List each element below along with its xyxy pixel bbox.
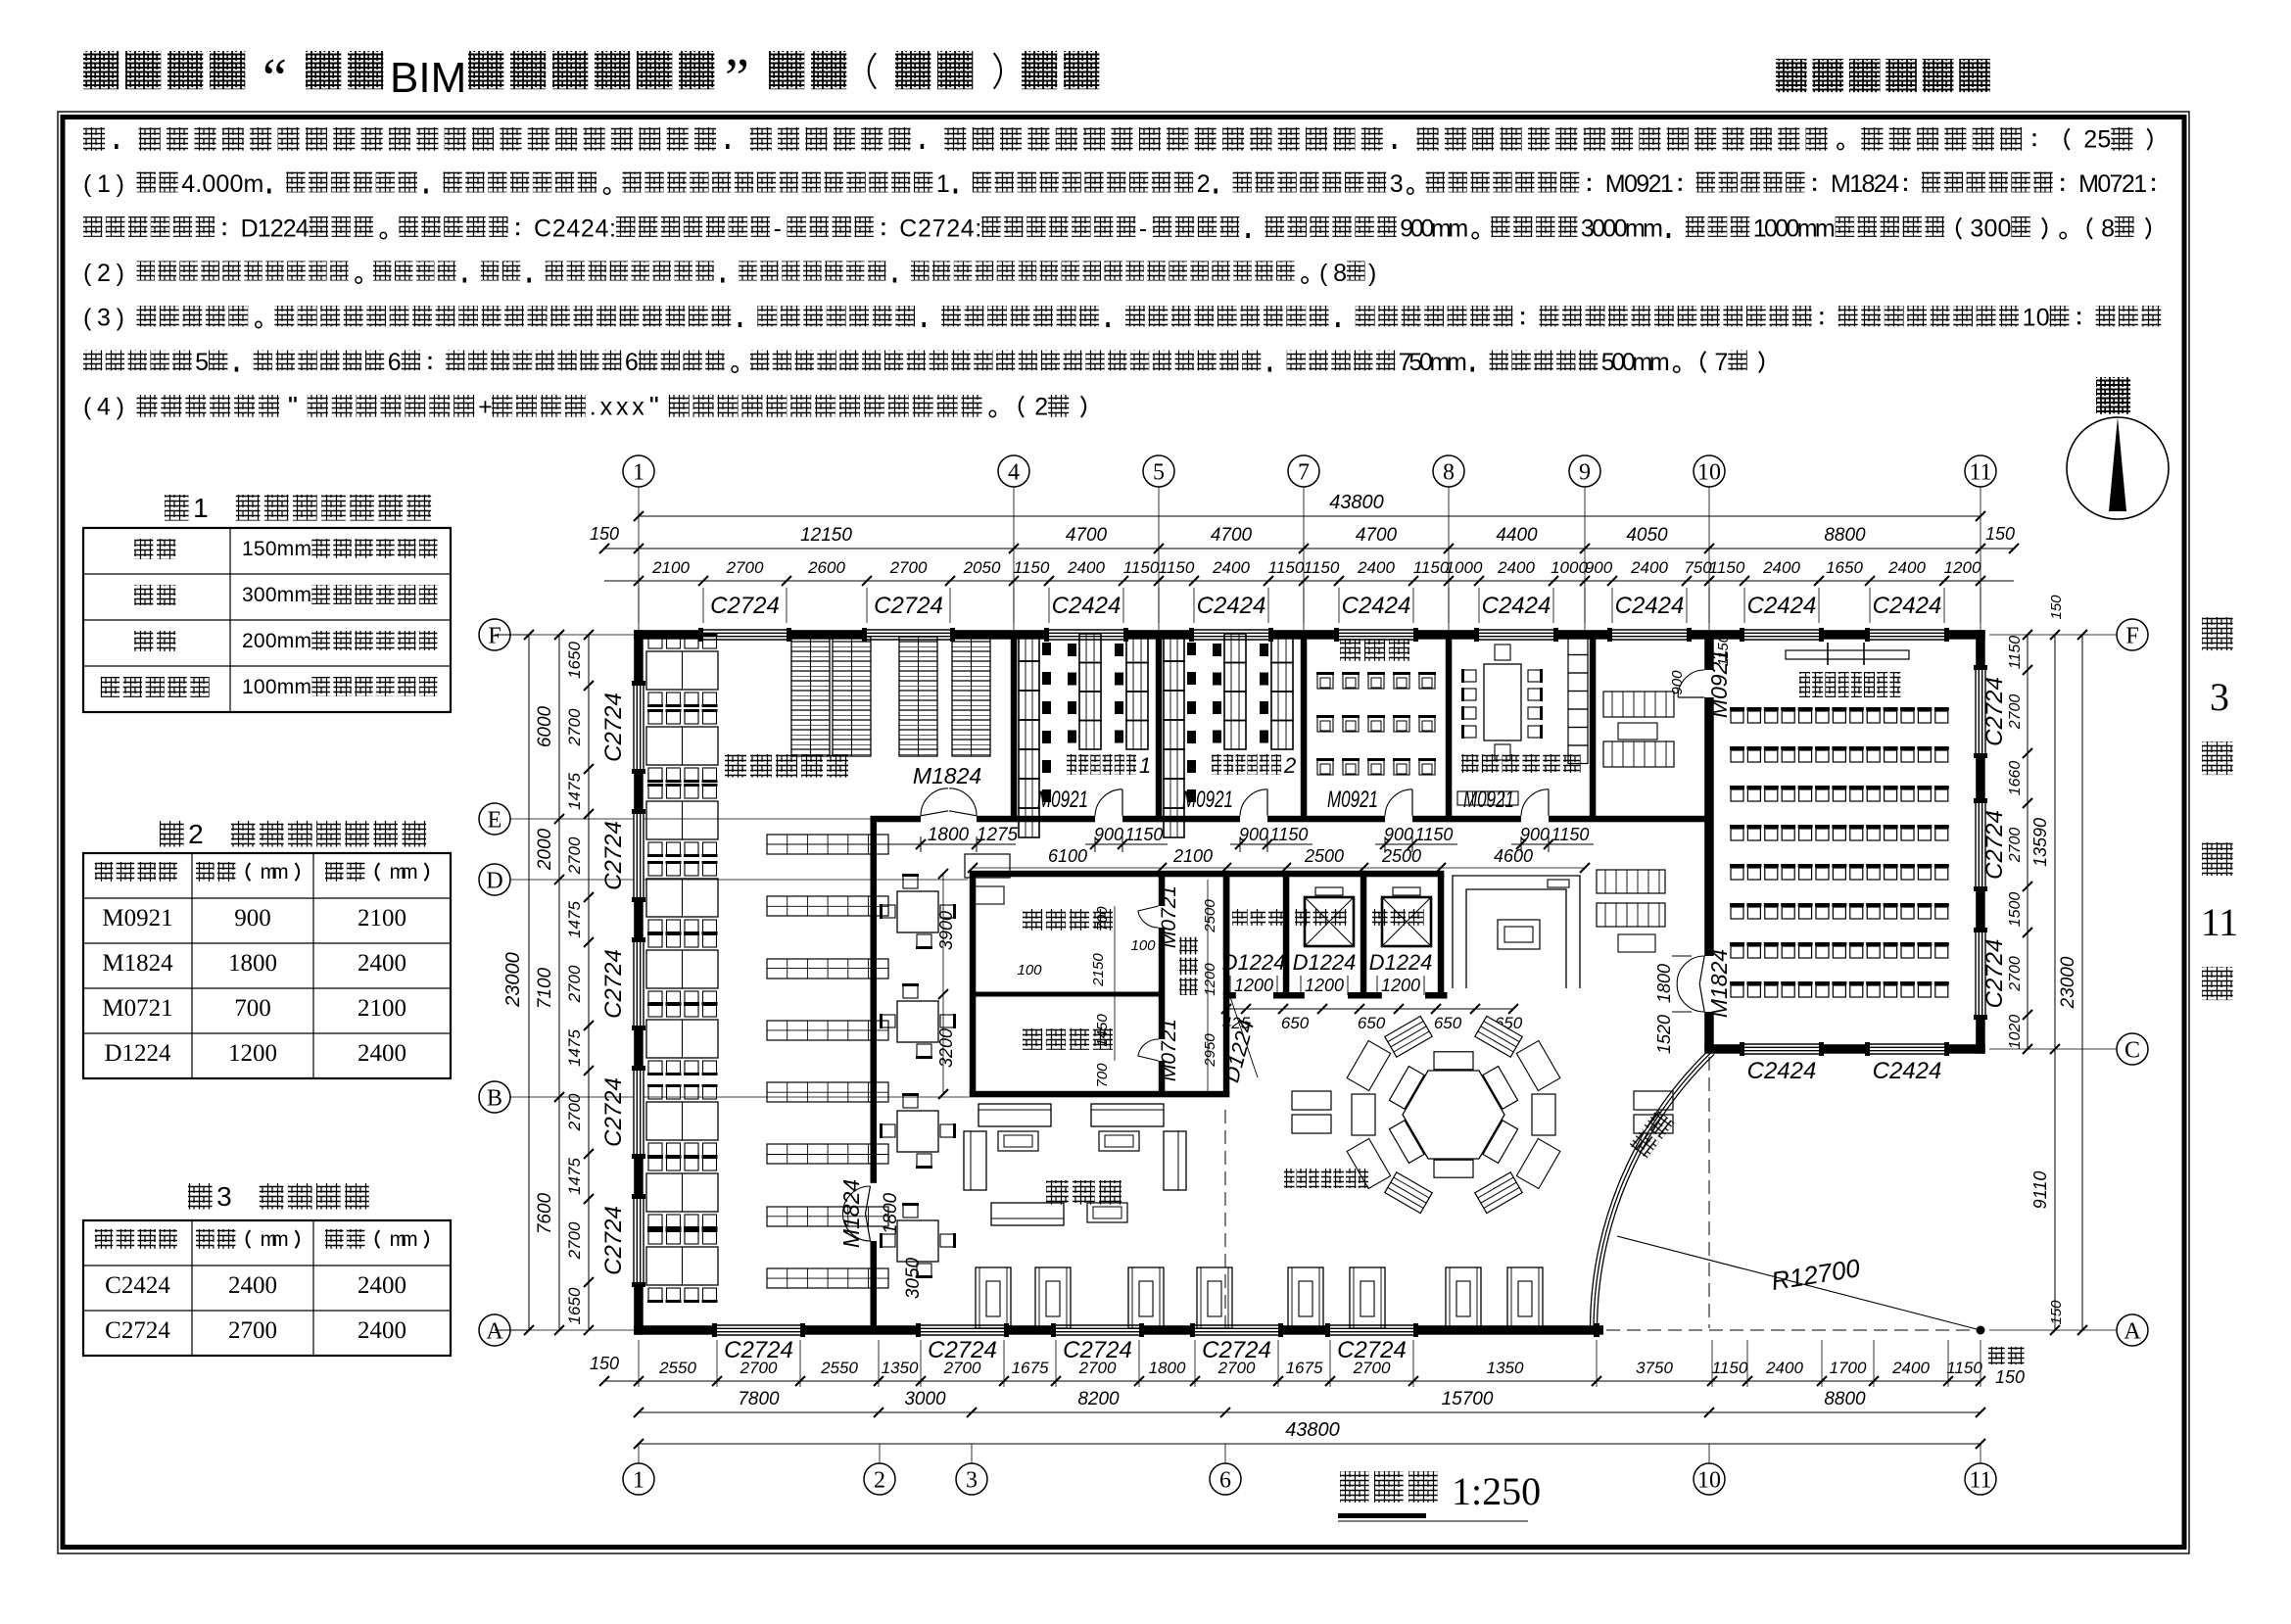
svg-text:8: 8	[2101, 215, 2115, 243]
svg-text:C2424: C2424	[1342, 593, 1411, 619]
svg-text:4700: 4700	[1211, 525, 1253, 546]
svg-text:M1824: M1824	[913, 763, 981, 788]
svg-text:2400: 2400	[358, 1317, 406, 1344]
svg-text:7: 7	[1714, 349, 1728, 376]
svg-text:D: D	[486, 868, 502, 893]
svg-text:2150: 2150	[1090, 953, 1107, 987]
svg-text:C2424: C2424	[1482, 593, 1551, 619]
svg-text:150: 150	[1985, 524, 2015, 544]
svg-text:2400: 2400	[228, 1272, 277, 1299]
svg-text:mm: mm	[390, 861, 418, 884]
svg-text:M0921: M0921	[102, 905, 172, 931]
svg-text:2: 2	[188, 819, 204, 849]
svg-text:43800: 43800	[1285, 1419, 1340, 1441]
svg-text:1150: 1150	[1123, 558, 1160, 577]
svg-text:F: F	[2125, 623, 2138, 648]
svg-text:2700: 2700	[565, 836, 584, 875]
svg-text:2: 2	[1197, 170, 1211, 198]
svg-text:2700: 2700	[943, 1359, 981, 1377]
svg-text:C2724: C2724	[600, 693, 627, 762]
svg-text:1150: 1150	[1159, 558, 1195, 577]
svg-text:1200: 1200	[1305, 976, 1344, 995]
svg-text:900: 900	[1384, 825, 1413, 844]
svg-text:2500: 2500	[1304, 846, 1344, 866]
svg-text:M0721: M0721	[102, 995, 172, 1022]
svg-text:10: 10	[1697, 459, 1721, 485]
svg-text:2700: 2700	[565, 1093, 584, 1131]
svg-text:4400: 4400	[1496, 525, 1538, 546]
svg-text:2700: 2700	[726, 558, 764, 577]
svg-text:”: ”	[725, 48, 749, 109]
svg-text:11: 11	[1969, 1467, 1991, 1493]
svg-text:BIM: BIM	[390, 54, 466, 102]
svg-text:150mm: 150mm	[242, 538, 311, 560]
svg-text:100: 100	[1130, 937, 1156, 954]
svg-text:10: 10	[2023, 305, 2050, 332]
svg-text:M1824: M1824	[1706, 949, 1732, 1018]
svg-text:1150: 1150	[1551, 825, 1590, 844]
svg-text:500mm: 500mm	[1601, 349, 1670, 376]
svg-text:E: E	[488, 807, 502, 833]
svg-text:C2724: C2724	[105, 1317, 170, 1344]
svg-text:1150: 1150	[1304, 558, 1340, 577]
svg-text:300: 300	[1970, 215, 2011, 243]
svg-text:M0721: M0721	[2078, 170, 2147, 198]
svg-text:7600: 7600	[535, 1192, 555, 1234]
svg-text:C2424: C2424	[1747, 593, 1817, 619]
svg-text:425: 425	[1222, 1014, 1251, 1032]
svg-text:1150: 1150	[1125, 825, 1164, 844]
svg-text:): )	[1368, 260, 1376, 287]
svg-text:D1224: D1224	[104, 1040, 171, 1067]
svg-text:150: 150	[1995, 1367, 2025, 1387]
svg-text:8: 8	[1443, 459, 1455, 485]
svg-text:900mm: 900mm	[1400, 215, 1468, 243]
svg-text:-: -	[1139, 215, 1147, 243]
svg-text:100: 100	[1017, 962, 1042, 979]
svg-text:mm: mm	[390, 1228, 418, 1251]
svg-text:3: 3	[1390, 170, 1404, 198]
svg-text:25: 25	[2083, 126, 2111, 154]
svg-text:3000mm: 3000mm	[1581, 215, 1663, 243]
svg-text:1275: 1275	[977, 825, 1019, 845]
svg-text:2400: 2400	[1887, 558, 1926, 577]
svg-text:2700: 2700	[565, 1221, 584, 1260]
svg-text:4050: 4050	[1626, 525, 1668, 546]
svg-text:900: 900	[1520, 825, 1550, 844]
svg-text:C2424: C2424	[1615, 593, 1685, 619]
svg-text:5: 5	[195, 349, 209, 376]
svg-text:10: 10	[1697, 1467, 1721, 1493]
svg-text:2700: 2700	[2007, 828, 2024, 864]
svg-text:C2724: C2724	[600, 1077, 627, 1147]
svg-text:C2724: C2724	[1981, 677, 2008, 746]
svg-text:M0921: M0921	[1327, 787, 1378, 813]
svg-text:1800: 1800	[1149, 1359, 1186, 1377]
svg-text:1500: 1500	[2007, 892, 2024, 928]
svg-text:-: -	[774, 215, 782, 243]
svg-text:7: 7	[1298, 459, 1310, 485]
svg-text:D1224: D1224	[1293, 950, 1357, 975]
svg-text:2550: 2550	[820, 1359, 858, 1377]
svg-text:4.000m: 4.000m	[181, 170, 263, 198]
svg-text:1350: 1350	[1487, 1359, 1524, 1377]
svg-text:C2424:: C2424:	[534, 215, 616, 243]
svg-text:(3): (3)	[83, 305, 124, 332]
svg-text:750mm: 750mm	[1399, 349, 1467, 376]
svg-text:1650: 1650	[1826, 558, 1863, 577]
svg-text:150: 150	[2048, 1300, 2065, 1325]
svg-text:1800: 1800	[228, 950, 277, 977]
svg-text:2700: 2700	[1078, 1359, 1117, 1377]
svg-text:2600: 2600	[807, 558, 845, 577]
svg-text:1: 1	[633, 1467, 644, 1493]
svg-text:1475: 1475	[565, 901, 584, 938]
svg-text:C2724: C2724	[1981, 939, 2008, 1009]
svg-text:150: 150	[590, 1354, 619, 1373]
svg-text:mm: mm	[261, 861, 289, 884]
svg-text:1150: 1150	[2007, 636, 2024, 670]
svg-text:D1224: D1224	[1369, 950, 1433, 975]
svg-text:1150: 1150	[1946, 1359, 1982, 1377]
svg-text:2400: 2400	[1067, 558, 1105, 577]
svg-text:2550: 2550	[658, 1359, 696, 1377]
svg-text:C2724: C2724	[874, 593, 943, 619]
svg-text:1660: 1660	[2007, 761, 2024, 796]
svg-text:150: 150	[2048, 595, 2065, 620]
svg-text:7800: 7800	[738, 1389, 780, 1409]
svg-text:900: 900	[1094, 825, 1123, 844]
svg-text:12150: 12150	[800, 525, 852, 546]
svg-text:A: A	[2124, 1318, 2141, 1344]
svg-text:C2424: C2424	[1197, 593, 1266, 619]
svg-text:6: 6	[1219, 1467, 1231, 1493]
svg-text:3000: 3000	[904, 1389, 946, 1409]
svg-text:1: 1	[1139, 753, 1151, 778]
svg-text:1200: 1200	[1202, 963, 1218, 996]
svg-text:C2724: C2724	[1981, 810, 2008, 880]
svg-text:2400: 2400	[1630, 558, 1668, 577]
svg-text:1150: 1150	[1715, 634, 1732, 666]
svg-text:2400: 2400	[1212, 558, 1250, 577]
svg-text:900: 900	[1585, 558, 1613, 577]
svg-text:mm: mm	[261, 1228, 289, 1251]
svg-text:2: 2	[874, 1467, 885, 1493]
svg-text:900: 900	[234, 905, 271, 931]
svg-text:2400: 2400	[358, 1040, 406, 1067]
svg-text:2100: 2100	[358, 995, 406, 1022]
svg-text:150: 150	[590, 524, 619, 544]
svg-text:650: 650	[1358, 1014, 1386, 1032]
svg-text:2700: 2700	[2007, 694, 2024, 731]
svg-text:8800: 8800	[1824, 1389, 1866, 1409]
svg-text:2400: 2400	[1497, 558, 1535, 577]
svg-text:C2724: C2724	[710, 593, 780, 619]
svg-text:M1824: M1824	[838, 1179, 864, 1248]
svg-text:43800: 43800	[1329, 492, 1384, 513]
svg-text:2700: 2700	[1217, 1359, 1256, 1377]
svg-text:B: B	[487, 1085, 502, 1111]
svg-text:1000: 1000	[1446, 558, 1483, 577]
svg-text:1: 1	[633, 459, 644, 485]
svg-text:650: 650	[1434, 1014, 1462, 1032]
svg-text:1000: 1000	[1551, 558, 1588, 577]
svg-text:(8: (8	[1319, 260, 1347, 287]
svg-text:1020: 1020	[2007, 1015, 2024, 1050]
svg-text:1475: 1475	[565, 1158, 584, 1195]
svg-text:1200: 1200	[1381, 976, 1420, 995]
svg-text:2100: 2100	[358, 905, 406, 931]
svg-text:2400: 2400	[358, 1272, 406, 1299]
svg-text:300mm: 300mm	[242, 584, 311, 606]
svg-text:1200: 1200	[1944, 558, 1981, 577]
svg-text:1150: 1150	[1270, 825, 1309, 844]
svg-text:M0921: M0921	[1463, 787, 1514, 813]
svg-text:3200: 3200	[936, 1028, 956, 1068]
svg-text:(4): (4)	[83, 394, 124, 421]
svg-text:2000: 2000	[535, 828, 555, 871]
svg-text:1: 1	[193, 493, 209, 523]
svg-text:1650: 1650	[565, 1287, 584, 1324]
svg-text:C: C	[2124, 1037, 2140, 1063]
svg-text:2100: 2100	[1172, 846, 1213, 866]
svg-text:3750: 3750	[1636, 1359, 1673, 1377]
svg-text:1520: 1520	[1654, 1015, 1674, 1054]
svg-text:2700: 2700	[1353, 1359, 1391, 1377]
svg-text:M1824: M1824	[102, 950, 173, 977]
svg-text:1150: 1150	[1413, 558, 1450, 577]
svg-text:C2424: C2424	[1052, 593, 1122, 619]
svg-text:1450: 1450	[1094, 1014, 1111, 1047]
svg-text:1675: 1675	[1012, 1359, 1049, 1377]
svg-text:4700: 4700	[1356, 525, 1398, 546]
svg-text:1000mm: 1000mm	[1753, 215, 1836, 243]
svg-text:1150: 1150	[1712, 1359, 1748, 1377]
svg-text:F: F	[488, 623, 501, 648]
svg-text:23000: 23000	[502, 952, 524, 1008]
svg-text:2700: 2700	[565, 708, 584, 746]
svg-text:1475: 1475	[565, 773, 584, 810]
svg-text:(2): (2)	[83, 260, 124, 287]
svg-text:6000: 6000	[535, 705, 555, 747]
svg-text:C2724:: C2724:	[899, 215, 981, 243]
svg-text:C2424: C2424	[1873, 1058, 1942, 1084]
svg-text:11: 11	[1969, 459, 1991, 485]
svg-text:2400: 2400	[1762, 558, 1800, 577]
svg-text:1350: 1350	[882, 1359, 919, 1377]
svg-text:1150: 1150	[1709, 558, 1745, 577]
svg-text:6100: 6100	[1048, 846, 1087, 866]
svg-text:+: +	[478, 394, 493, 421]
svg-text:6: 6	[388, 349, 402, 376]
svg-text:2400: 2400	[1891, 1359, 1930, 1377]
svg-text:700: 700	[1094, 906, 1111, 931]
svg-text:C2424: C2424	[1747, 1058, 1817, 1084]
svg-text:9: 9	[1579, 459, 1591, 485]
svg-text:2700: 2700	[565, 965, 584, 1003]
svg-text:1700: 1700	[1830, 1359, 1867, 1377]
svg-text:1800: 1800	[881, 1192, 901, 1234]
svg-text:1: 1	[936, 170, 950, 198]
svg-text:2500: 2500	[1202, 899, 1218, 933]
svg-text:4600: 4600	[1494, 846, 1533, 866]
svg-text:3: 3	[216, 1181, 232, 1212]
svg-text:6: 6	[625, 349, 639, 376]
svg-text:1200: 1200	[1234, 976, 1273, 995]
svg-text:3: 3	[2210, 675, 2229, 719]
svg-text:23000: 23000	[2058, 956, 2078, 1009]
svg-text:2700: 2700	[740, 1359, 778, 1377]
svg-text:700: 700	[1094, 1063, 1111, 1088]
svg-text:200mm: 200mm	[242, 630, 311, 652]
svg-text:C2424: C2424	[105, 1272, 170, 1299]
svg-text:1800: 1800	[1654, 964, 1674, 1003]
svg-text:1800: 1800	[928, 825, 970, 845]
svg-text:4: 4	[1008, 459, 1020, 485]
svg-text:1150: 1150	[1415, 825, 1454, 844]
svg-text:650: 650	[1281, 1014, 1310, 1032]
svg-text:8200: 8200	[1077, 1389, 1120, 1409]
svg-text:3: 3	[966, 1467, 978, 1493]
svg-text:2500: 2500	[1381, 846, 1421, 866]
svg-text:100mm: 100mm	[242, 676, 311, 698]
svg-text:1200: 1200	[228, 1040, 277, 1067]
svg-text:2100: 2100	[651, 558, 690, 577]
svg-text:C2724: C2724	[600, 1206, 627, 1275]
svg-text:2: 2	[1034, 394, 1048, 421]
svg-text:1475: 1475	[565, 1029, 584, 1067]
svg-text:1150: 1150	[1014, 558, 1050, 577]
svg-text:1150: 1150	[1268, 558, 1305, 577]
svg-text:M0721: M0721	[1158, 885, 1180, 948]
svg-text:2700: 2700	[889, 558, 928, 577]
svg-text:13590: 13590	[2030, 818, 2050, 867]
svg-text:A: A	[486, 1318, 503, 1344]
svg-text:“: “	[263, 48, 287, 109]
svg-text:M0721: M0721	[1158, 1019, 1180, 1081]
svg-text:2400: 2400	[358, 950, 406, 977]
svg-text:7100: 7100	[535, 967, 555, 1009]
svg-text:C2424: C2424	[1873, 593, 1942, 619]
svg-text:C2724: C2724	[600, 949, 627, 1019]
svg-text:D1224: D1224	[1222, 950, 1286, 975]
svg-text:1650: 1650	[565, 642, 584, 679]
svg-text:5: 5	[1153, 459, 1165, 485]
svg-text:700: 700	[234, 995, 271, 1022]
svg-text:M0921: M0921	[1605, 170, 1674, 198]
svg-text:1:250: 1:250	[1452, 1469, 1541, 1513]
svg-text:2400: 2400	[1765, 1359, 1803, 1377]
svg-text:D1224: D1224	[241, 215, 310, 243]
svg-text:11: 11	[2201, 900, 2239, 944]
svg-text:9110: 9110	[2030, 1171, 2050, 1210]
svg-text:900: 900	[1239, 825, 1268, 844]
svg-text:8800: 8800	[1824, 525, 1866, 546]
svg-text:4700: 4700	[1066, 525, 1108, 546]
svg-text:2950: 2950	[1202, 1033, 1218, 1068]
svg-text:2050: 2050	[963, 558, 1001, 577]
svg-text:M1824: M1824	[1831, 170, 1899, 198]
svg-text:15700: 15700	[1442, 1389, 1494, 1409]
svg-text:(1): (1)	[83, 170, 124, 198]
svg-text:2400: 2400	[1357, 558, 1395, 577]
svg-text:2700: 2700	[228, 1317, 277, 1344]
svg-text:2700: 2700	[2007, 956, 2024, 992]
svg-text:1675: 1675	[1286, 1359, 1323, 1377]
svg-text:2: 2	[1283, 753, 1296, 778]
